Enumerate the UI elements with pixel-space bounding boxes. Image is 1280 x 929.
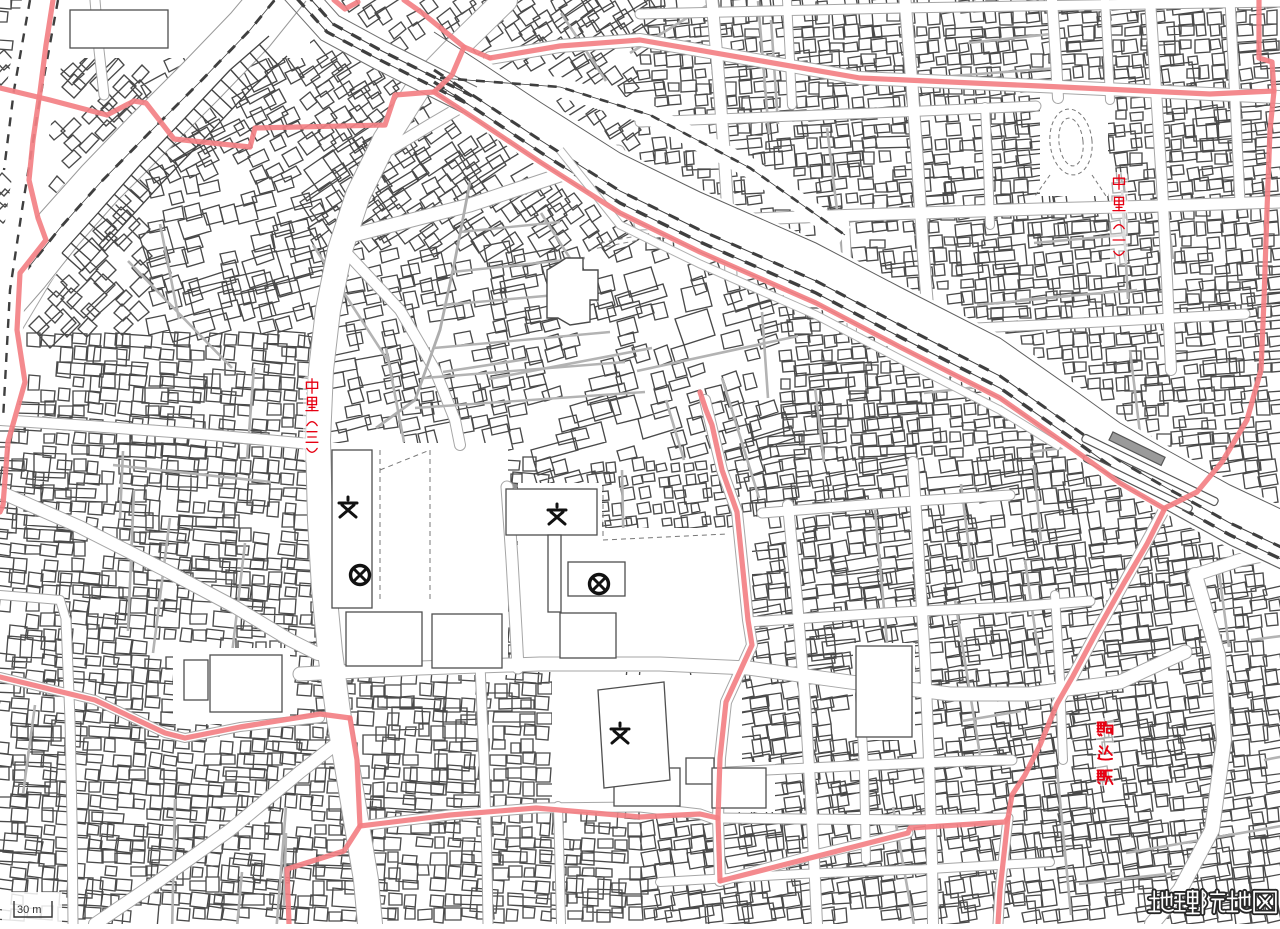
svg-text:30 m: 30 m [17,904,41,916]
